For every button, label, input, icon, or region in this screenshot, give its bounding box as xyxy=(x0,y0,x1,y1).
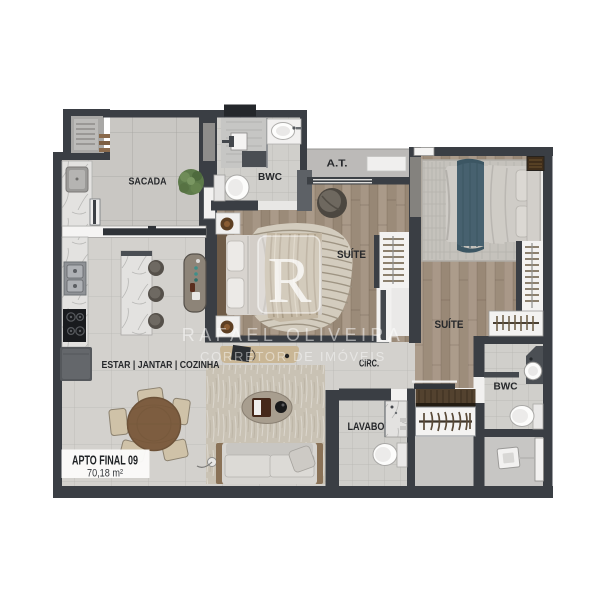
svg-text:BWC: BWC xyxy=(494,381,518,393)
svg-text:R: R xyxy=(267,244,311,317)
svg-text:70,18 m²: 70,18 m² xyxy=(87,468,123,480)
svg-text:SACADA: SACADA xyxy=(129,176,167,188)
svg-text:CORRETOR DE IMÓVEIS: CORRETOR DE IMÓVEIS xyxy=(200,349,386,364)
svg-text:RAFAEL OLIVEIRA: RAFAEL OLIVEIRA xyxy=(182,325,404,345)
svg-text:LAVABO: LAVABO xyxy=(348,421,385,433)
svg-text:SUÍTE: SUÍTE xyxy=(337,248,366,261)
svg-text:BWC: BWC xyxy=(258,171,282,183)
svg-text:A.T.: A.T. xyxy=(327,159,348,170)
svg-text:SUÍTE: SUÍTE xyxy=(435,318,464,331)
svg-text:APTO FINAL 09: APTO FINAL 09 xyxy=(72,453,138,468)
